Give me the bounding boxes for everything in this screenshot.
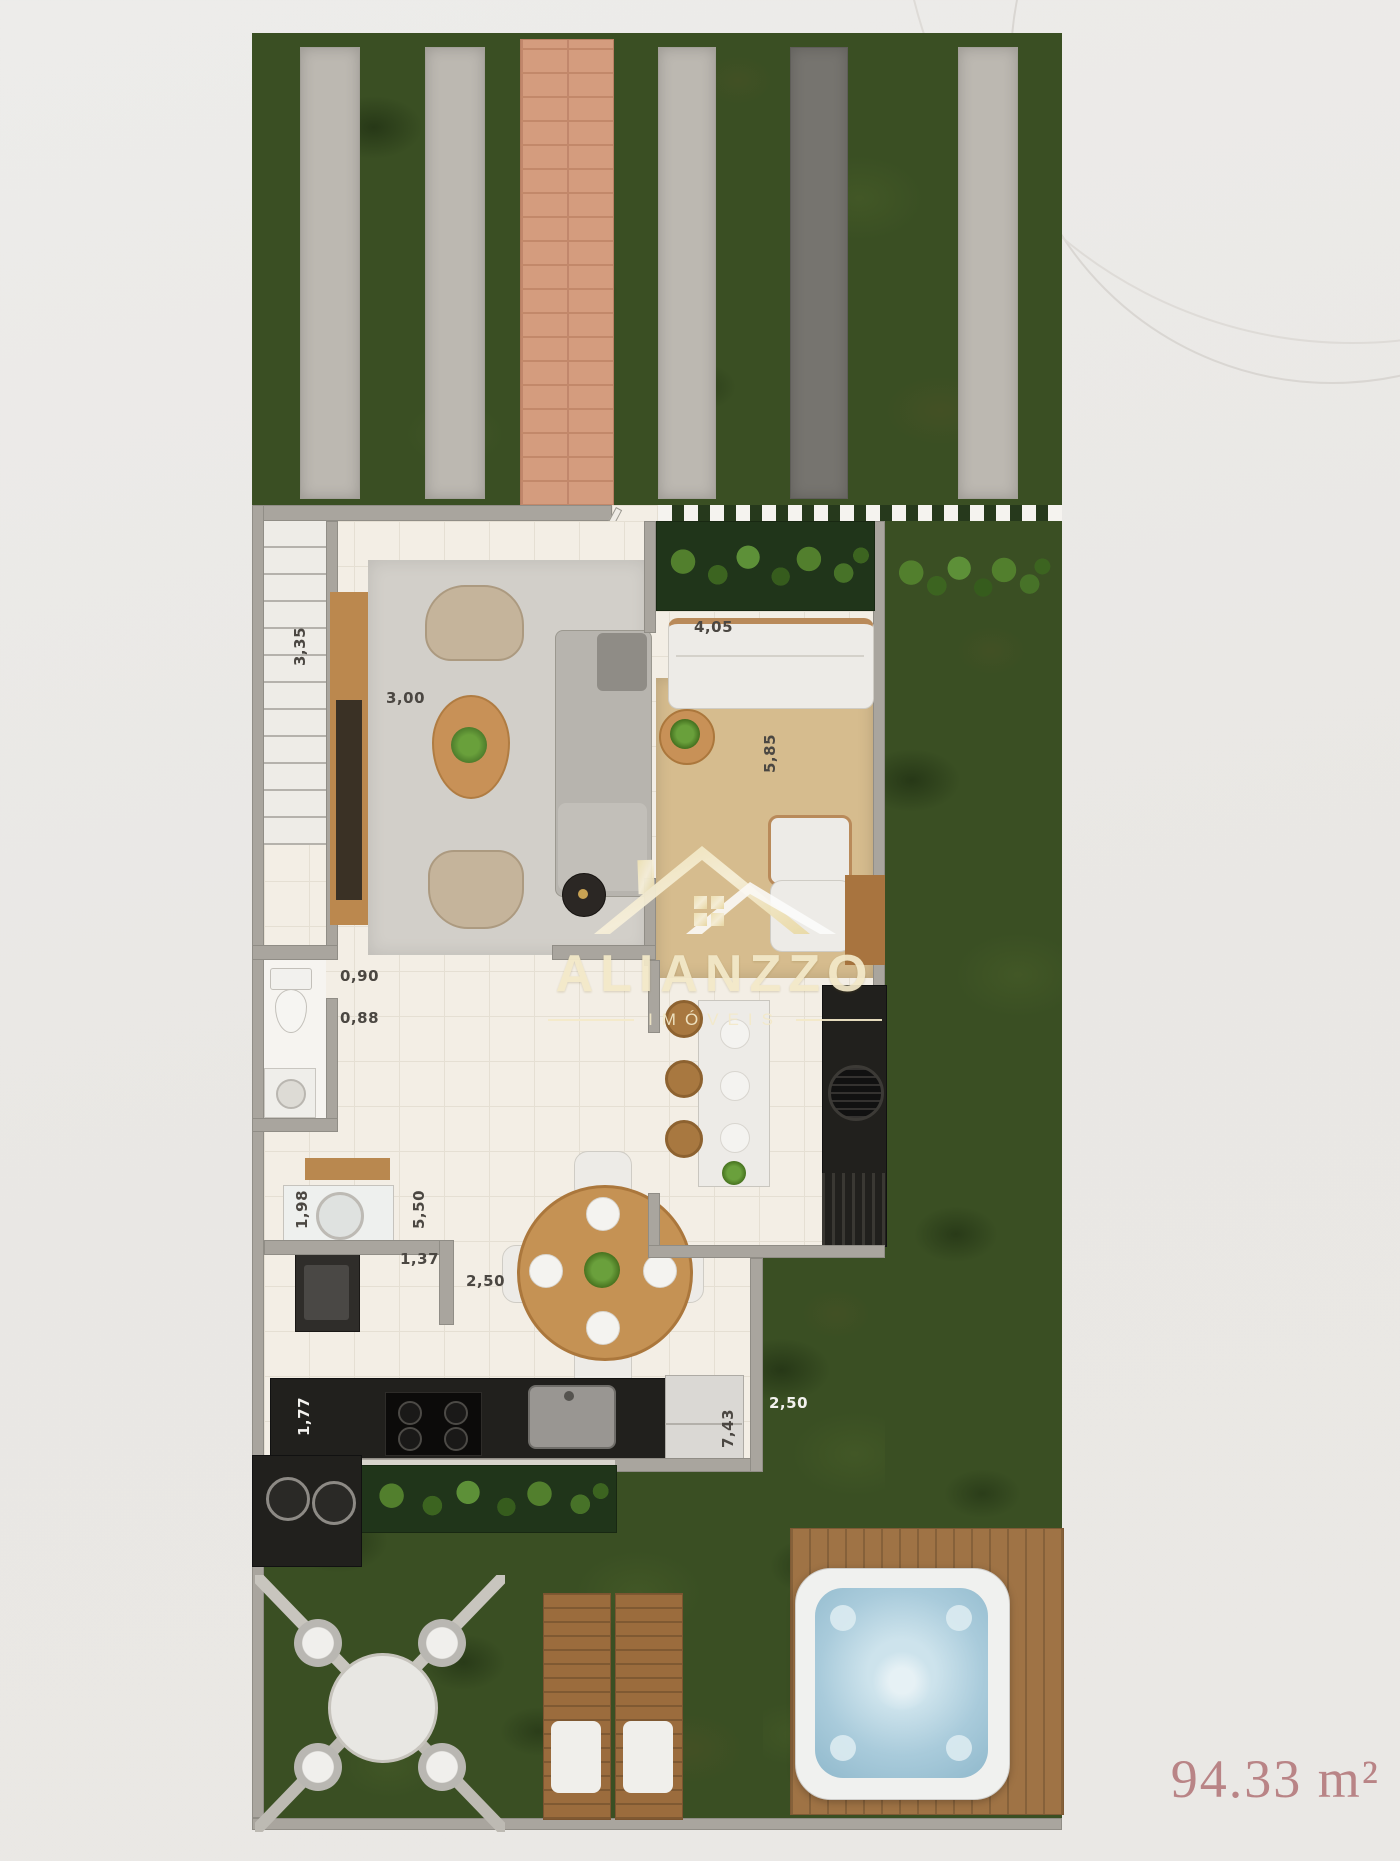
laundry-sink: [316, 1192, 364, 1240]
dim-lavabo-width: 0,88: [340, 1009, 379, 1027]
hot-tub-jet: [830, 1735, 856, 1761]
terrace-armchair: [770, 880, 852, 952]
laundry-shelf: [305, 1158, 390, 1180]
staircase: [264, 521, 327, 845]
cooktop: [385, 1392, 482, 1456]
brick-walkway: [520, 39, 614, 507]
laundry-cabinet-door: [304, 1265, 349, 1320]
paver-strip: [300, 47, 360, 499]
bar-stool: [665, 1060, 703, 1098]
hot-tub-center-swirl: [872, 1651, 932, 1711]
cooktop-burner: [398, 1427, 422, 1451]
terrace-plant: [670, 719, 700, 749]
pergola-chair: [418, 1743, 466, 1791]
dim-dining-width: 2,50: [466, 1272, 505, 1290]
hot-tub-jet: [946, 1735, 972, 1761]
lounger-cushion: [623, 1721, 673, 1793]
outdoor-sink: [266, 1477, 310, 1521]
dim-entry-width: 4,05: [694, 618, 733, 636]
top-garden: [252, 33, 1062, 505]
outdoor-sink: [312, 1481, 356, 1525]
garden-planter: [360, 1465, 617, 1533]
cooktop-burner: [444, 1401, 468, 1425]
tv-screen: [336, 700, 362, 900]
dim-stairs-width: 3,35: [291, 626, 309, 666]
gourmet-bottom-wall: [648, 1245, 885, 1258]
kitchen-gourmet-wall: [648, 960, 660, 1033]
bar-stool: [665, 1000, 703, 1038]
hot-tub-jet: [830, 1605, 856, 1631]
dinner-plate: [586, 1311, 620, 1345]
dinner-plate: [586, 1197, 620, 1231]
dim-kitchen-run: 7,43: [719, 1408, 737, 1448]
pergola-chair: [418, 1619, 466, 1667]
island-plate: [720, 1019, 750, 1049]
paver-strip: [658, 47, 716, 499]
terrace-planter: [656, 521, 875, 611]
dim-kitchen-depth: 5,50: [410, 1189, 428, 1229]
pergola: [255, 1575, 505, 1832]
dim-side-garden-width: 2,50: [769, 1394, 808, 1412]
cooktop-burner: [444, 1427, 468, 1451]
hall-wall: [326, 998, 338, 1121]
slatted-fence: [658, 505, 1062, 521]
sofa-side-table: [597, 633, 647, 691]
dim-dining-offset: 1,37: [400, 1250, 439, 1268]
cooktop-burner: [398, 1401, 422, 1425]
floor-plan: 3,35 3,00 4,05 5,85 0,90 0,88 1,98 5,50 …: [252, 33, 1062, 1830]
outdoor-sofa-seam: [676, 655, 864, 657]
dim-counter-depth: 1,77: [295, 1396, 313, 1436]
partition-wall: [252, 945, 338, 960]
dim-laundry-depth: 1,98: [293, 1189, 311, 1229]
island-plant: [722, 1161, 746, 1185]
lavabo-bottom-wall: [252, 1118, 338, 1132]
toilet-tank: [270, 968, 312, 990]
hot-tub-jet: [946, 1605, 972, 1631]
pergola-chair: [294, 1619, 342, 1667]
dim-lavabo-door: 0,90: [340, 967, 379, 985]
grill-counter-slats: [822, 1173, 885, 1245]
area-label: 94.33 m²: [1080, 1748, 1380, 1810]
living-terrace-wall: [644, 521, 656, 633]
paver-strip-dark: [790, 47, 848, 499]
terrace-armchair: [768, 815, 852, 886]
side-table-accent: [578, 889, 588, 899]
paver-strip: [425, 47, 485, 499]
dining-wall-stub: [439, 1240, 454, 1325]
partition-wall: [552, 945, 656, 960]
terrace-bench: [845, 875, 885, 965]
dinner-plate: [529, 1254, 563, 1288]
island-plate: [720, 1071, 750, 1101]
dim-living-width: 3,00: [386, 689, 425, 707]
lavabo-sink: [276, 1079, 306, 1109]
grill: [828, 1065, 884, 1121]
lounger-cushion: [551, 1721, 601, 1793]
pergola-chair: [294, 1743, 342, 1791]
island-plate: [720, 1123, 750, 1153]
side-garden-bushes: [892, 533, 1052, 621]
pergola-table: [328, 1653, 438, 1763]
page-background: { "plan": { "area_label": "94.33 m²", "d…: [0, 0, 1400, 1861]
bar-stool: [665, 1120, 703, 1158]
front-wall: [252, 505, 612, 521]
kitchen-right-wall: [750, 1258, 763, 1472]
table-centerpiece-plant: [584, 1252, 620, 1288]
dinner-plate: [643, 1254, 677, 1288]
armchair: [428, 850, 524, 929]
coffee-table-plant: [451, 727, 487, 763]
dim-terrace-depth: 5,85: [761, 733, 779, 773]
paver-strip: [958, 47, 1018, 499]
armchair: [425, 585, 524, 661]
kitchen-faucet: [564, 1391, 574, 1401]
